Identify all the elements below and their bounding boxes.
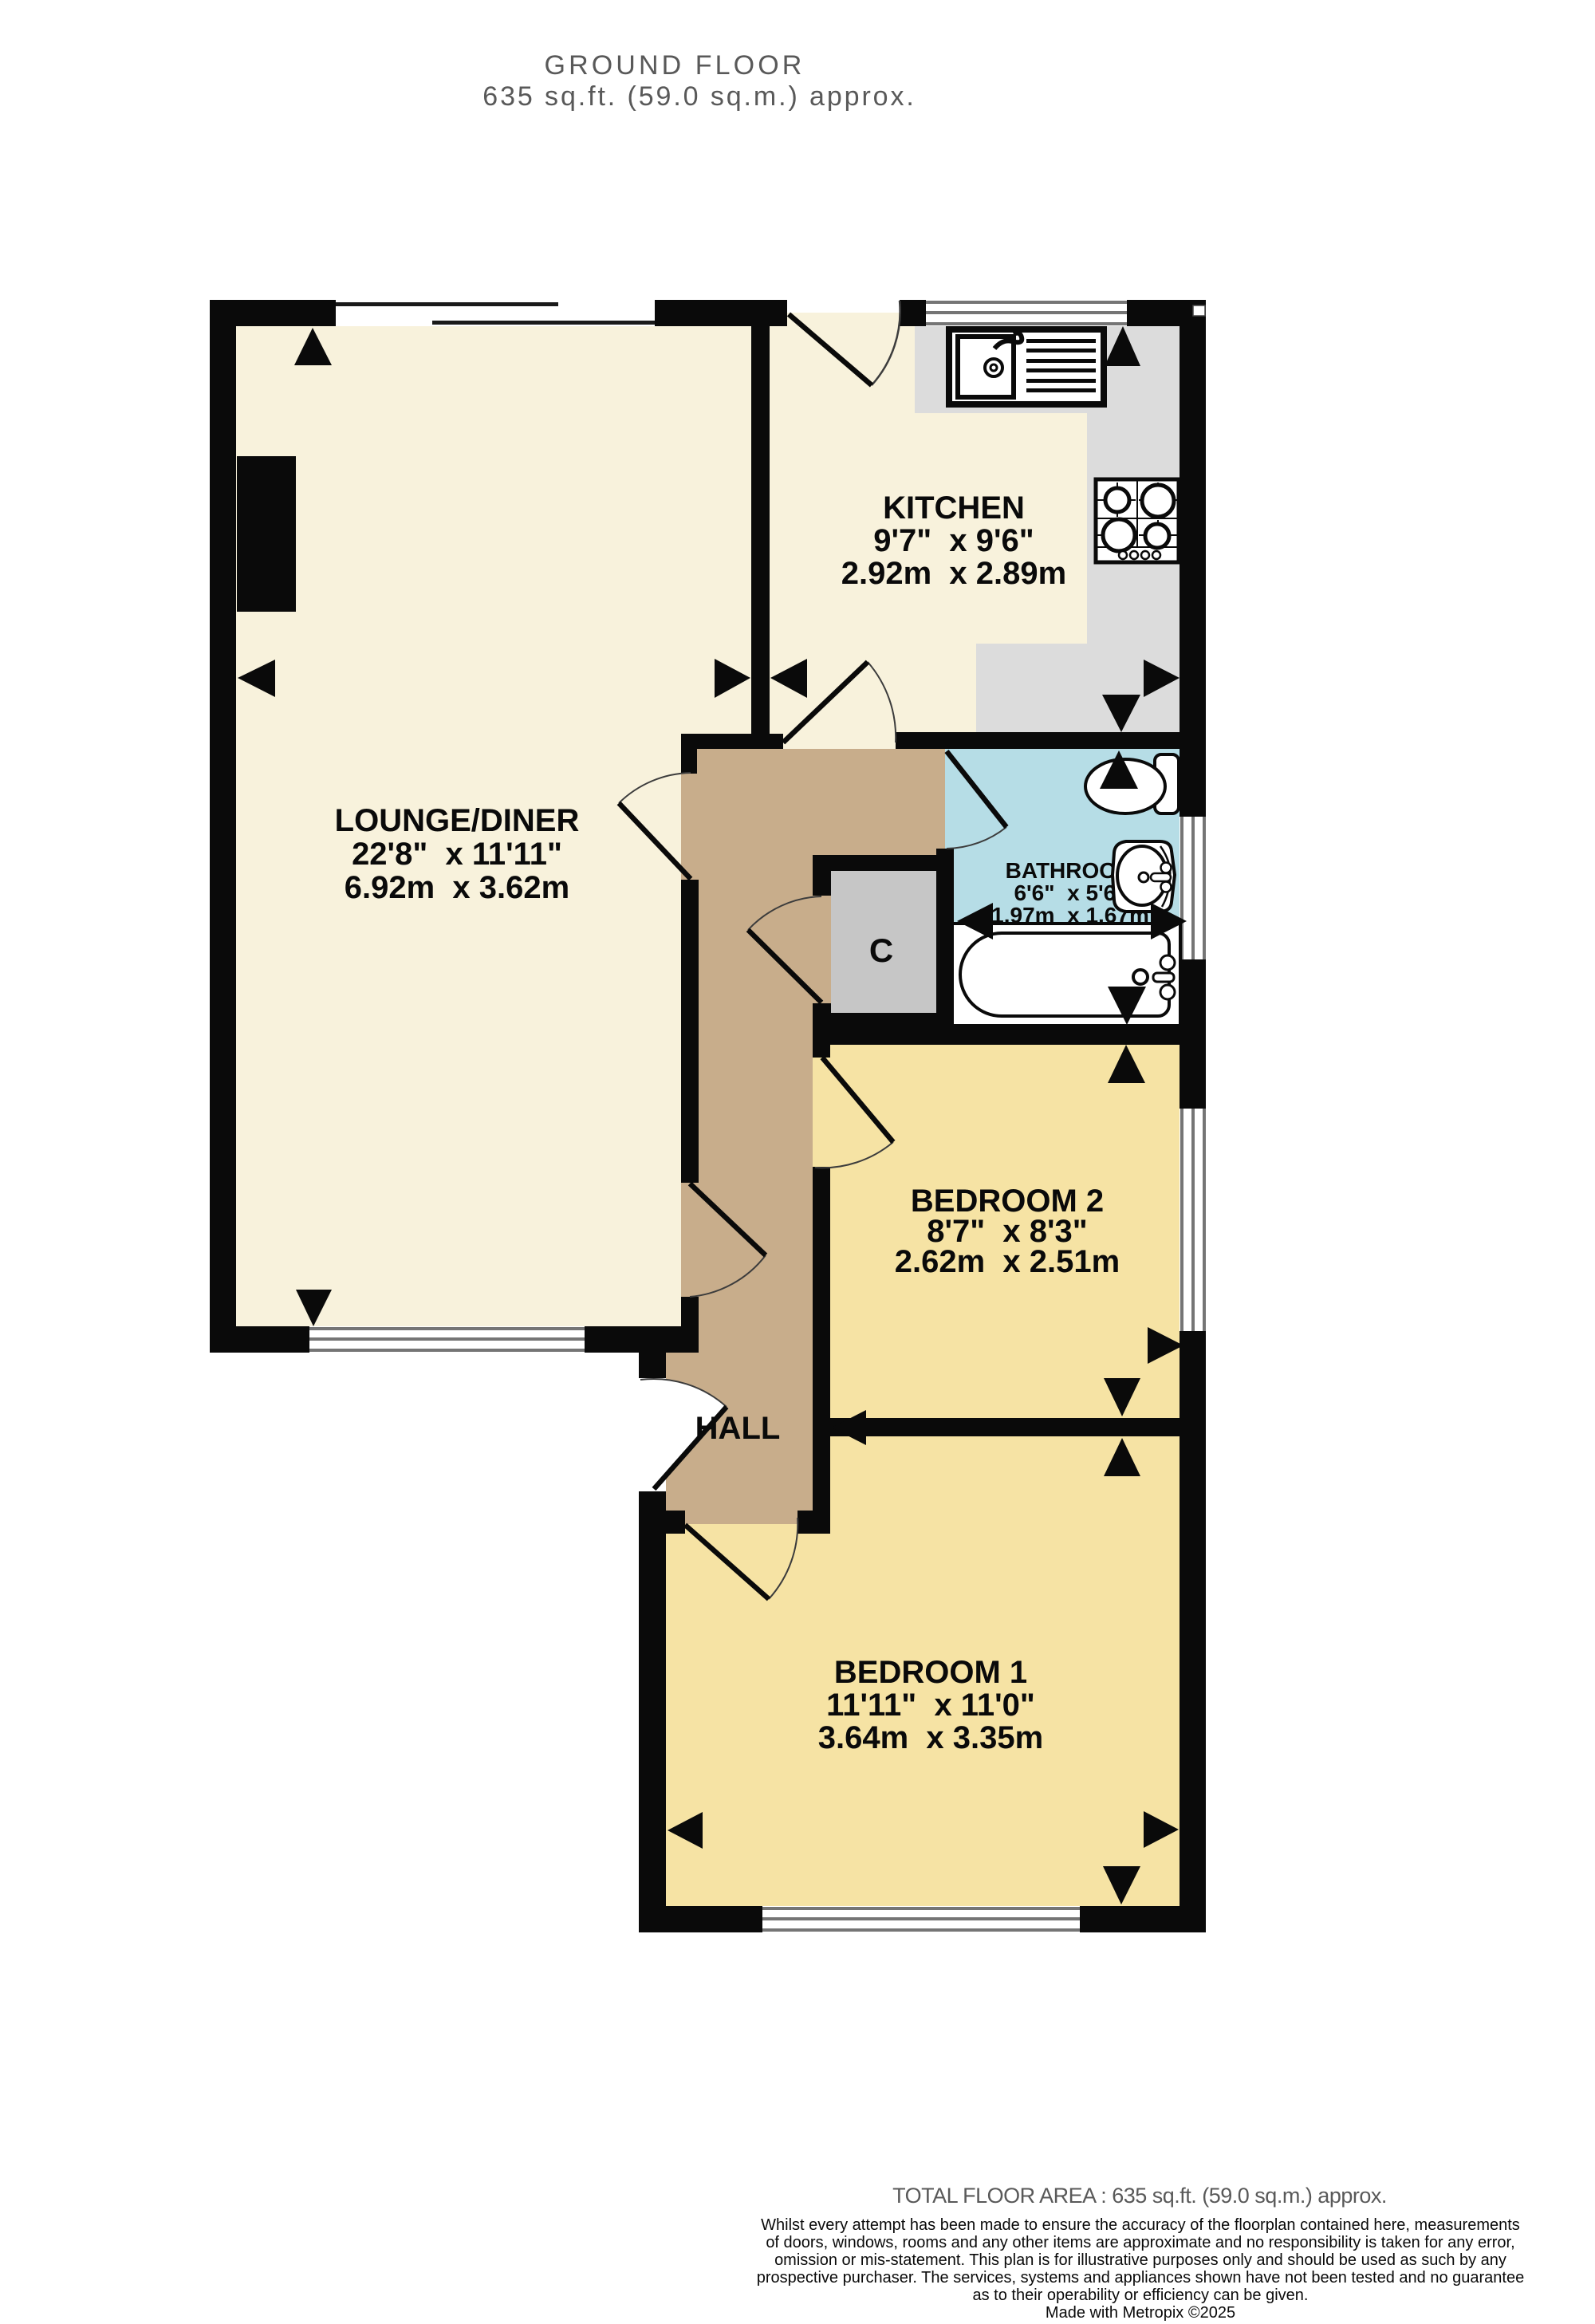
svg-text:GROUND FLOOR: GROUND FLOOR (545, 50, 805, 81)
svg-text:2.92m x 2.89m: 2.92m x 2.89m (841, 556, 1066, 591)
svg-text:omission or mis-statement. Thi: omission or mis-statement. This plan is … (774, 2251, 1506, 2269)
svg-text:LOUNGE/DINER: LOUNGE/DINER (335, 803, 580, 838)
svg-text:Made with Metropix ©2025: Made with Metropix ©2025 (1046, 2304, 1235, 2322)
svg-text:2.62m x 2.51m: 2.62m x 2.51m (895, 1244, 1120, 1279)
svg-text:Whilst every attempt has been: Whilst every attempt has been made to en… (761, 2216, 1520, 2234)
svg-text:6.92m x 3.62m: 6.92m x 3.62m (345, 870, 569, 905)
svg-text:9'7" x 9'6": 9'7" x 9'6" (873, 523, 1034, 558)
svg-text:3.64m x 3.35m: 3.64m x 3.35m (818, 1720, 1043, 1755)
svg-text:as to their operability or eff: as to their operability or efficiency ca… (973, 2287, 1309, 2304)
svg-text:prospective purchaser. The ser: prospective purchaser. The services, sys… (757, 2269, 1524, 2287)
svg-text:of doors, windows, rooms and a: of doors, windows, rooms and any other i… (766, 2234, 1514, 2251)
svg-text:6'6" x 5'6": 6'6" x 5'6" (1014, 880, 1126, 905)
svg-text:HALL: HALL (695, 1411, 781, 1446)
svg-text:C: C (869, 932, 893, 969)
svg-text:11'11" x 11'0": 11'11" x 11'0" (826, 1688, 1035, 1723)
svg-text:BEDROOM 1: BEDROOM 1 (834, 1655, 1027, 1690)
svg-text:22'8" x 11'11": 22'8" x 11'11" (352, 837, 562, 872)
svg-text:635 sq.ft. (59.0 sq.m.) approx: 635 sq.ft. (59.0 sq.m.) approx. (482, 81, 916, 112)
svg-text:KITCHEN: KITCHEN (883, 490, 1025, 526)
svg-text:TOTAL FLOOR AREA : 635 sq.ft.: TOTAL FLOOR AREA : 635 sq.ft. (59.0 sq.m… (892, 2184, 1387, 2208)
